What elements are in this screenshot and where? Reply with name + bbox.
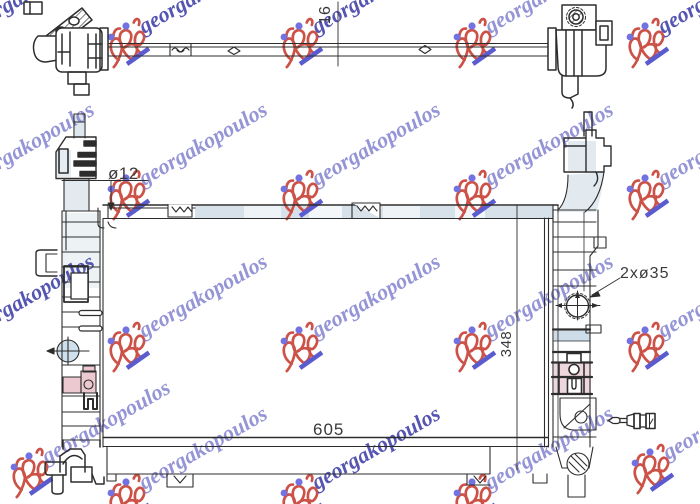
svg-text:georgakopoulos: georgakopoulos: [306, 249, 444, 343]
svg-text:2xø35: 2xø35: [620, 265, 669, 282]
svg-text:605: 605: [313, 420, 344, 439]
svg-text:georgakopoulos: georgakopoulos: [652, 97, 700, 191]
svg-text:ø12: ø12: [108, 164, 139, 183]
svg-text:georgakopoulos: georgakopoulos: [306, 401, 444, 495]
svg-text:georgakopoulos: georgakopoulos: [306, 97, 444, 191]
svg-text:georgakopoulos: georgakopoulos: [133, 0, 271, 39]
svg-text:georgakopoulos: georgakopoulos: [133, 97, 271, 191]
svg-text:348: 348: [498, 331, 515, 358]
svg-text:16: 16: [317, 6, 334, 25]
svg-text:georgakopoulos: georgakopoulos: [36, 375, 174, 469]
svg-text:georgakopoulos: georgakopoulos: [652, 249, 700, 343]
svg-text:georgakopoulos: georgakopoulos: [133, 249, 271, 343]
svg-text:georgakopoulos: georgakopoulos: [657, 371, 700, 465]
svg-text:georgakopoulos: georgakopoulos: [133, 401, 271, 495]
